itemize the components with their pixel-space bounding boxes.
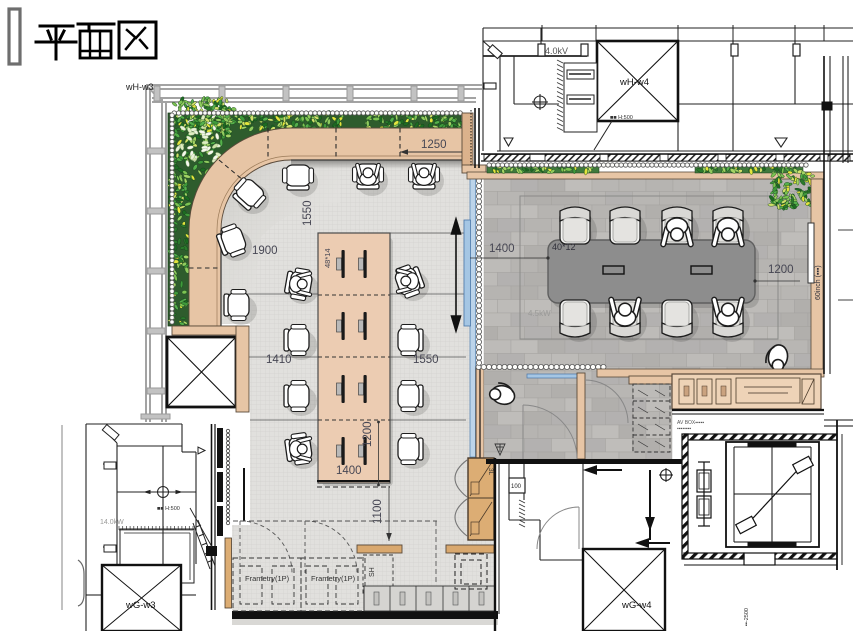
svg-text:wH-w4: wH-w4	[619, 77, 649, 88]
svg-text:1200: 1200	[768, 264, 794, 276]
svg-text:1200: 1200	[362, 421, 374, 447]
svg-text:60inch (▪▪▪): 60inch (▪▪▪)	[815, 265, 822, 300]
svg-text:wH-w3: wH-w3	[125, 82, 154, 92]
svg-text:wG-w3: wG-w3	[125, 600, 156, 611]
svg-text:wG-w4: wG-w4	[621, 600, 652, 611]
svg-text:4.5kW: 4.5kW	[528, 309, 551, 318]
svg-text:▪▪▪▪▪▪▪▪: ▪▪▪▪▪▪▪▪	[677, 426, 691, 432]
svg-text:SH: SH	[369, 567, 376, 577]
svg-text:1250: 1250	[421, 139, 447, 151]
svg-text:4.0kV: 4.0kV	[545, 46, 568, 56]
svg-text:Frametry(1P): Frametry(1P)	[245, 574, 290, 583]
svg-text:14.0kW: 14.0kW	[100, 519, 124, 526]
svg-text:1400: 1400	[336, 465, 362, 477]
svg-text:48*14: 48*14	[323, 248, 332, 268]
svg-text:40*12: 40*12	[552, 242, 576, 252]
svg-text:1410: 1410	[266, 354, 292, 366]
svg-text:1550: 1550	[302, 200, 314, 226]
svg-text:Frametry(1P): Frametry(1P)	[311, 574, 356, 583]
svg-text:100: 100	[511, 484, 522, 490]
svg-text:1400: 1400	[489, 243, 515, 255]
svg-text:1550: 1550	[413, 354, 439, 366]
svg-text:3L: 3L	[487, 468, 494, 476]
svg-text:1100: 1100	[372, 499, 384, 524]
svg-text:■■ H:500: ■■ H:500	[157, 506, 180, 512]
svg-text:■■ H:500: ■■ H:500	[610, 115, 633, 121]
svg-text:▪▪-2500: ▪▪-2500	[744, 608, 750, 626]
svg-text:1900: 1900	[252, 245, 278, 257]
